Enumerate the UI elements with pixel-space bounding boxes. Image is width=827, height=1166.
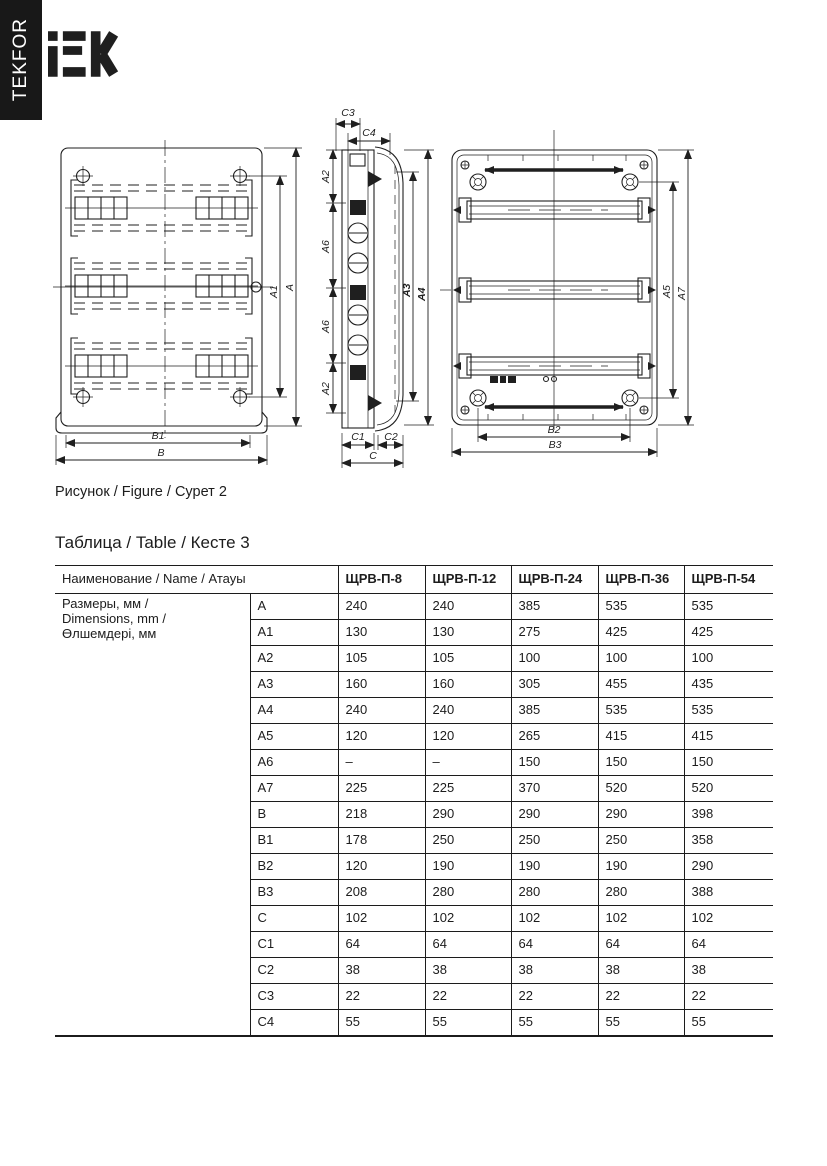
dimension-name-cell: C2 <box>250 958 338 984</box>
dimension-value-cell: 22 <box>598 984 684 1010</box>
table-header-model-3: ЩРВ-П-24 <box>511 566 598 594</box>
dimension-value-cell: 64 <box>684 932 773 958</box>
dimension-value-cell: 265 <box>511 724 598 750</box>
dimension-value-cell: 102 <box>684 906 773 932</box>
tekfor-label: TEKFOR <box>10 18 32 101</box>
dimension-value-cell: 240 <box>338 594 425 620</box>
dimension-value-cell: 225 <box>338 776 425 802</box>
dimension-value-cell: 275 <box>511 620 598 646</box>
dimension-value-cell: 102 <box>598 906 684 932</box>
dimension-value-cell: 370 <box>511 776 598 802</box>
dimension-value-cell: 535 <box>598 698 684 724</box>
dimension-value-cell: 22 <box>338 984 425 1010</box>
dimension-value-cell: 250 <box>511 828 598 854</box>
dimensions-table-body: Размеры, мм /Dimensions, mm /Өлшемдері, … <box>55 594 773 1036</box>
dimension-value-cell: 358 <box>684 828 773 854</box>
dimension-value-cell: 38 <box>684 958 773 984</box>
dim-label-b1: B1 <box>152 430 165 442</box>
dimension-value-cell: 520 <box>684 776 773 802</box>
dimension-value-cell: 64 <box>425 932 511 958</box>
dimension-value-cell: 250 <box>425 828 511 854</box>
table-row: Размеры, мм /Dimensions, mm /Өлшемдері, … <box>55 594 773 620</box>
dimension-value-cell: 190 <box>598 854 684 880</box>
dimension-value-cell: 535 <box>684 594 773 620</box>
table-header-row: Наименование / Name / Атауы ЩРВ-П-8 ЩРВ-… <box>55 566 773 594</box>
dimension-value-cell: 38 <box>425 958 511 984</box>
dim-label-a6-top: A6 <box>320 240 332 254</box>
dimension-value-cell: 130 <box>425 620 511 646</box>
dimension-value-cell: 280 <box>598 880 684 906</box>
dimension-value-cell: 290 <box>684 854 773 880</box>
dimension-value-cell: 385 <box>511 594 598 620</box>
dimension-value-cell: 218 <box>338 802 425 828</box>
dim-label-a2-bottom: A2 <box>320 382 332 396</box>
dimension-value-cell: 240 <box>425 698 511 724</box>
dimension-value-cell: 120 <box>338 854 425 880</box>
dimension-value-cell: 535 <box>598 594 684 620</box>
dimension-value-cell: 55 <box>598 1010 684 1036</box>
dimension-value-cell: – <box>425 750 511 776</box>
dim-label-c: C <box>369 450 377 462</box>
dimension-value-cell: 22 <box>425 984 511 1010</box>
dimensions-table-wrap: Наименование / Name / Атауы ЩРВ-П-8 ЩРВ-… <box>55 565 773 1037</box>
dim-label-a3: A3 <box>401 283 413 298</box>
catalog-page: TEKFOR <box>0 0 827 1166</box>
dim-label-a5: A5 <box>661 285 673 299</box>
dimension-name-cell: C4 <box>250 1010 338 1036</box>
dimension-value-cell: 120 <box>338 724 425 750</box>
dimension-value-cell: 130 <box>338 620 425 646</box>
dimensions-table: Наименование / Name / Атауы ЩРВ-П-8 ЩРВ-… <box>55 565 773 1037</box>
dimension-value-cell: 150 <box>684 750 773 776</box>
table-header-model-5: ЩРВ-П-54 <box>684 566 773 594</box>
dimension-value-cell: 290 <box>511 802 598 828</box>
dim-label-a4: A4 <box>416 287 428 302</box>
dimension-name-cell: C3 <box>250 984 338 1010</box>
dimension-value-cell: 105 <box>425 646 511 672</box>
dimension-name-cell: A4 <box>250 698 338 724</box>
dimension-value-cell: 240 <box>425 594 511 620</box>
dimension-value-cell: 102 <box>511 906 598 932</box>
dimension-value-cell: 305 <box>511 672 598 698</box>
front-view-drawing: A1 A B1 B <box>53 138 303 470</box>
figure-caption: Рисунок / Figure / Сурет 2 <box>55 484 227 500</box>
dimension-name-cell: B2 <box>250 854 338 880</box>
dimension-value-cell: 415 <box>598 724 684 750</box>
dim-label-a: A <box>284 284 296 292</box>
table-caption: Таблица / Table / Кесте 3 <box>55 533 250 553</box>
dimension-value-cell: 150 <box>511 750 598 776</box>
dimension-value-cell: 225 <box>425 776 511 802</box>
dimension-value-cell: 190 <box>425 854 511 880</box>
dimension-value-cell: 100 <box>598 646 684 672</box>
dimension-value-cell: 120 <box>425 724 511 750</box>
side-view-drawing: C3 C4 A2 A6 A6 A2 A3 A4 C1 C2 <box>316 103 441 475</box>
dimension-value-cell: 425 <box>598 620 684 646</box>
dim-label-a6-bottom: A6 <box>320 320 332 334</box>
dimension-value-cell: 208 <box>338 880 425 906</box>
dimension-value-cell: 105 <box>338 646 425 672</box>
dim-label-c3: C3 <box>341 107 355 119</box>
dimension-value-cell: 398 <box>684 802 773 828</box>
dimension-value-cell: 535 <box>684 698 773 724</box>
table-header-name: Наименование / Name / Атауы <box>55 566 338 594</box>
dimension-name-cell: A5 <box>250 724 338 750</box>
dimension-name-cell: B <box>250 802 338 828</box>
tekfor-brand-tab: TEKFOR <box>0 0 42 120</box>
dimension-name-cell: A3 <box>250 672 338 698</box>
dim-label-a7: A7 <box>676 286 688 301</box>
dimension-value-cell: 100 <box>511 646 598 672</box>
dimension-value-cell: 435 <box>684 672 773 698</box>
dim-label-c1: C1 <box>351 431 364 443</box>
dimension-value-cell: 64 <box>338 932 425 958</box>
dimension-value-cell: 455 <box>598 672 684 698</box>
dimension-value-cell: 178 <box>338 828 425 854</box>
dimension-value-cell: 250 <box>598 828 684 854</box>
dimension-value-cell: 520 <box>598 776 684 802</box>
dim-label-b: B <box>157 447 164 459</box>
dimension-name-cell: B1 <box>250 828 338 854</box>
dim-label-a2-top: A2 <box>320 170 332 184</box>
table-header-model-2: ЩРВ-П-12 <box>425 566 511 594</box>
dimension-value-cell: 240 <box>338 698 425 724</box>
dimension-value-cell: 280 <box>425 880 511 906</box>
dim-label-c2: C2 <box>384 431 398 443</box>
dimension-value-cell: 38 <box>338 958 425 984</box>
iek-logo-icon <box>48 28 118 80</box>
dimension-value-cell: 55 <box>684 1010 773 1036</box>
dimension-value-cell: 55 <box>425 1010 511 1036</box>
dimension-value-cell: 385 <box>511 698 598 724</box>
dimension-value-cell: 280 <box>511 880 598 906</box>
dimension-value-cell: 290 <box>425 802 511 828</box>
dimension-value-cell: 150 <box>598 750 684 776</box>
dimension-value-cell: 38 <box>598 958 684 984</box>
dimension-value-cell: 290 <box>598 802 684 828</box>
dimension-value-cell: 102 <box>338 906 425 932</box>
dimension-value-cell: 64 <box>511 932 598 958</box>
dim-label-b2: B2 <box>548 424 561 436</box>
dimension-value-cell: 64 <box>598 932 684 958</box>
dimension-value-cell: 102 <box>425 906 511 932</box>
dimension-name-cell: A2 <box>250 646 338 672</box>
dimension-value-cell: 22 <box>684 984 773 1010</box>
dimension-value-cell: 100 <box>684 646 773 672</box>
dimension-value-cell: 55 <box>338 1010 425 1036</box>
table-header-model-4: ЩРВ-П-36 <box>598 566 684 594</box>
dimension-value-cell: 55 <box>511 1010 598 1036</box>
row-group-label: Размеры, мм /Dimensions, mm /Өлшемдері, … <box>55 594 250 1036</box>
dimension-name-cell: A6 <box>250 750 338 776</box>
dimension-value-cell: 38 <box>511 958 598 984</box>
dim-label-c4: C4 <box>362 127 376 139</box>
dim-label-a1: A1 <box>268 285 280 299</box>
dimension-value-cell: 415 <box>684 724 773 750</box>
dimension-name-cell: C1 <box>250 932 338 958</box>
dimension-name-cell: B3 <box>250 880 338 906</box>
dimension-value-cell: 160 <box>338 672 425 698</box>
dimension-value-cell: 160 <box>425 672 511 698</box>
dimension-value-cell: 22 <box>511 984 598 1010</box>
dimension-value-cell: 190 <box>511 854 598 880</box>
dimension-name-cell: C <box>250 906 338 932</box>
table-header-model-1: ЩРВ-П-8 <box>338 566 425 594</box>
back-view-drawing: A5 A7 B2 B3 <box>438 128 703 468</box>
dimension-name-cell: A1 <box>250 620 338 646</box>
dimension-value-cell: – <box>338 750 425 776</box>
dimension-value-cell: 425 <box>684 620 773 646</box>
dimension-name-cell: A <box>250 594 338 620</box>
dimension-value-cell: 388 <box>684 880 773 906</box>
dimension-name-cell: A7 <box>250 776 338 802</box>
dim-label-b3: B3 <box>549 439 562 451</box>
